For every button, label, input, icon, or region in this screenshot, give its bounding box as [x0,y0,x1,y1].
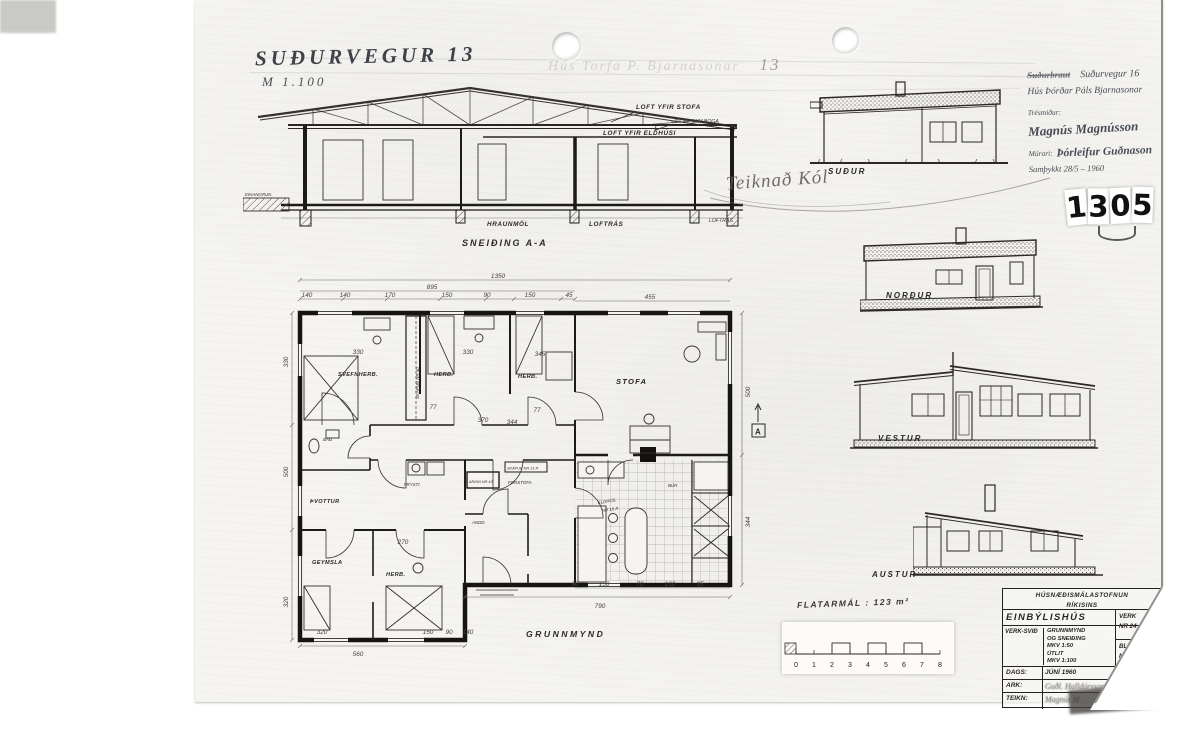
elevation-north [860,226,1045,318]
dimension-label: 90 [483,292,491,299]
carpenter-label: Trésmiður: [1028,108,1061,118]
dimension-label: 330 [353,349,364,356]
scale-bar-number: 8 [938,662,942,669]
section-label-loft-stofa: LOFT YFIR STOFA [636,104,701,111]
paper-edge-line [1161,0,1163,590]
faded-note-number: 13 [759,55,780,74]
dimension-label: 320 [283,596,290,607]
dimension-label: 344 [507,419,518,426]
paper-corner-cut [1078,578,1174,710]
struck-word: Suðurbraut [1027,69,1070,80]
scale-bar-number: 5 [884,662,888,669]
scale-bar-card: 012345678 [782,622,954,674]
dimension-label: 560 [353,651,364,658]
room-label-stofa: STOFA [616,377,647,386]
elevation-west-caption: VESTUR [878,434,922,443]
dimension-label: 77 [533,407,541,414]
dimension-label: 130 [665,581,676,588]
dimension-label: 500 [745,386,752,397]
elevation-east [913,483,1108,583]
dimension-label: 500 [283,466,290,477]
room-label-thvottur: ÞVOTTUR [310,499,340,505]
scale-bar-number: 1 [812,662,816,669]
room-label-herb3: HERB. [386,572,405,578]
dimension-label: 455 [645,294,656,301]
section-caption: SNEIÐING A-A [462,238,548,248]
plan-caption: GRUNNMYND [526,629,605,639]
dimension-label: 77 [429,404,437,411]
dimension-label: 344 [745,516,752,527]
dimension-label: 95 [696,581,704,588]
info-owner: Hús Þórðar Páls Bjarnasonar [1027,85,1159,98]
date-value: JÚNÍ 1960 [1045,669,1076,676]
dimension-label: 150 [423,629,434,636]
scanned-drawing-page: SUÐURVEGUR 13 M 1.100 Hús Torfa P. Bjarn… [0,0,1200,729]
dimension-label: 330 [283,356,290,367]
dimension-label: 140 [302,292,313,299]
stamp-digit: 5 [1131,187,1153,224]
dimension-label: 1350 [491,273,506,280]
stamp-digit: 3 [1088,188,1109,224]
dimension-label: 150 [442,292,453,299]
title-block-divider [1042,667,1043,709]
handwritten-address: SUÐURVEGUR 13 [255,42,477,72]
dimension-label: 790 [595,603,606,610]
scan-corner-smudge [0,0,56,33]
carpenter-signature: Magnús Magnússon [1028,119,1139,140]
room-label-skapur2: SKÁPUR NR 21 R [507,467,538,471]
room-label-geymsla: GEYMSLA [312,560,342,566]
scale-bar-number: 2 [830,662,834,669]
building-type: EINBÝLISHÚS [1006,612,1086,623]
section-label-boga: ⌀2½"×7" M/M BOGA [671,118,719,125]
dimension-label: 150 [599,581,610,588]
scale-bar-number: 3 [848,662,852,669]
dimension-label: 60 [571,581,579,588]
elevation-east-caption: AUSTUR [872,570,917,579]
dimension-label: 140 [340,292,351,299]
section-drawing: LOFT YFIR STOFA ⌀2½"×7" M/M BOGA LOFT YF… [243,78,748,248]
info-address: Suðurvegur 16 [1080,68,1139,80]
dimension-label: 895 [427,284,438,291]
room-label-svefnherb: SVEFNHERB. [338,372,378,378]
versvid-label: VERK-SVIÐ [1005,629,1041,635]
room-label-andd: ANDD. [471,520,486,525]
elevation-north-caption: NORÐUR [886,291,933,300]
room-label-herb2: HERB. [518,374,537,380]
scale-bar-number: 0 [794,662,798,669]
section-leader-lines [611,112,673,130]
section-label-loftras: LOFTRÁS [589,219,624,228]
section-label-loft-eldhus: LOFT YFIR ELDHÚSI [603,128,676,137]
scale-bar-number: 4 [866,662,870,669]
dimension-label: 330 [463,349,474,356]
room-label-forstofa: FORSTOFA [508,480,532,485]
elevation-south [810,80,1010,180]
drawing-number-stamp: 1305 [1065,186,1154,225]
scale-bar: 012345678 [782,622,954,674]
elevation-south-caption: SUÐUR [828,167,866,176]
draftsman-label: TEIKN: [1006,695,1028,702]
section-marker-a-label: A [755,428,761,437]
faded-note-script: Hús Torfa P. Bjarnasonar [548,59,740,74]
room-label-arinn: ARINN NR 43 [468,480,494,484]
punch-hole [832,27,859,54]
dimension-label: 70 [636,581,644,588]
section-label-hraunmol: HRAUNMÖL [487,219,529,228]
section-walls [305,125,732,210]
date-label: DAGS: [1006,669,1027,676]
fireplace-block [640,447,656,462]
stamp-digit: 0 [1109,187,1132,224]
scale-bar-number: 6 [902,662,906,669]
dimension-label: 170 [385,292,396,299]
dimension-label: 150 [525,292,536,299]
dimension-label: 90 [445,629,453,636]
dimension-label: 270 [397,539,409,546]
mason-signature: Þórleifur Guðnason [1057,144,1153,161]
room-label-skapur: SKÁPUR NR 40 [415,367,420,399]
scale-bar-number: 7 [920,662,924,669]
dimension-label: 345 [535,351,546,358]
dimension-label: 320 [317,629,328,636]
room-label-bur: BÚR [668,483,678,488]
dimension-label: 45 [565,292,573,299]
room-label-frysti: FRYSTI. [404,482,421,487]
room-label-bad: BAÐ [323,437,333,442]
architect-label: ARK: [1006,682,1022,689]
dimension-label: 370 [478,417,489,424]
stamp-arc-mark [1098,226,1136,241]
elevation-west [850,350,1100,460]
faded-handwritten-note: Hús Torfa P. Bjarnasonar 13 [548,55,968,75]
floor-plan-drawing: 1350895140140170150901504545533033034537… [268,256,780,676]
room-label-herb1: HERB. [434,372,453,378]
scale-bar-numbers: 012345678 [794,662,942,669]
dimension-label: 140 [463,629,474,636]
section-label-einangrun: EINANGRUN [245,192,272,197]
